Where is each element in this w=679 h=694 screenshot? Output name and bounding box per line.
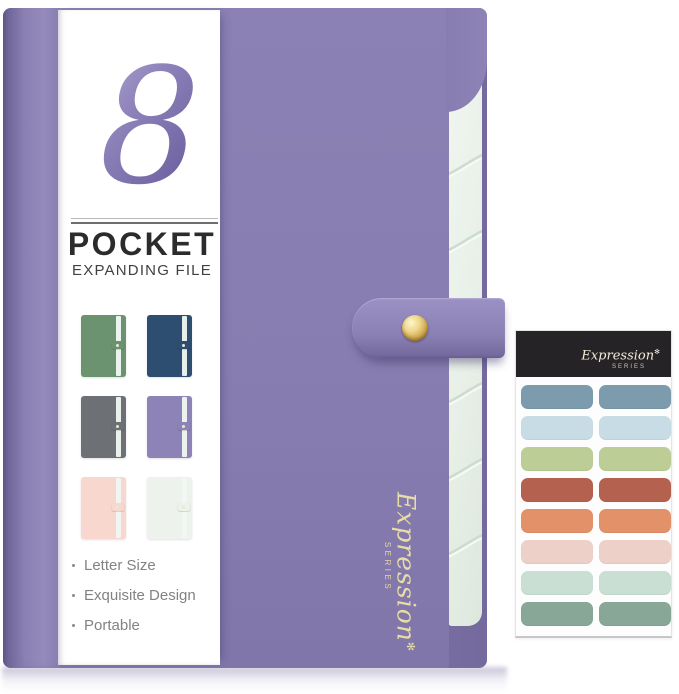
expanding-file-folder: 8 POCKET EXPANDING FILE Letter Size Exqu… (3, 8, 504, 668)
label-sticker (521, 416, 593, 440)
color-swatch-purple (147, 396, 192, 458)
label-sticker (599, 509, 671, 533)
feature-list: Letter Size Exquisite Design Portable (72, 550, 196, 640)
folder-spine-edge (3, 8, 60, 668)
feature-text: Exquisite Design (84, 587, 196, 604)
brand-mark: Expression✻ SERIES (382, 492, 423, 642)
feature-text: Letter Size (84, 557, 156, 574)
star-icon: ✻ (404, 642, 417, 652)
folder-reflection (2, 667, 507, 692)
mini-strap-tab (112, 503, 124, 511)
numeral-8: 8 (99, 50, 201, 210)
mini-strap-tab (112, 341, 124, 349)
mini-strap-tab (112, 422, 124, 430)
feature-text: Portable (84, 617, 140, 634)
color-swatch-navy (147, 315, 192, 377)
sticker-grid (516, 377, 671, 636)
bullet-dot (72, 594, 75, 597)
label-sticker (521, 385, 593, 409)
color-swatch-gray (81, 396, 126, 458)
label-sticker (521, 509, 593, 533)
gold-snap-button-icon (402, 315, 428, 341)
sheet-brand-series: SERIES (612, 363, 646, 371)
brand-name: Expression (392, 492, 421, 642)
sheet-brand-script: Expression✻ (581, 345, 660, 363)
divider-rule (71, 218, 218, 224)
bullet-dot (72, 564, 75, 567)
star-icon: ✻ (654, 348, 660, 356)
closure-strap (352, 298, 505, 358)
label-sticker (599, 447, 671, 471)
label-sticker (521, 571, 593, 595)
sheet-brand-name: Expression (581, 348, 654, 363)
pocket-count-numeral: 8 (86, 50, 214, 210)
product-photo: 8 POCKET EXPANDING FILE Letter Size Exqu… (0, 0, 679, 694)
feature-item: Portable (72, 610, 196, 640)
label-sticker (599, 540, 671, 564)
color-swatch-pink (81, 477, 126, 539)
mini-strap-tab (178, 422, 190, 430)
mini-strap-tab (178, 503, 190, 511)
label-sticker (599, 478, 671, 502)
label-sticker (521, 447, 593, 471)
label-sticker (521, 478, 593, 502)
product-title: POCKET (66, 226, 218, 263)
product-subtitle: EXPANDING FILE (66, 262, 218, 279)
label-sticker (599, 385, 671, 409)
sticker-sheet-header: Expression✻ SERIES (516, 331, 671, 377)
color-swatch-grid (81, 315, 192, 539)
label-sticker (599, 416, 671, 440)
sticker-sheet: Expression✻ SERIES (515, 330, 672, 638)
label-sticker (521, 540, 593, 564)
mini-strap-tab (178, 341, 190, 349)
label-band: 8 POCKET EXPANDING FILE Letter Size Exqu… (58, 10, 220, 665)
color-swatch-green (81, 315, 126, 377)
brand-script-text: Expression✻ (393, 492, 423, 642)
feature-item: Exquisite Design (72, 580, 196, 610)
bullet-dot (72, 624, 75, 627)
label-sticker (521, 602, 593, 626)
label-sticker (599, 571, 671, 595)
feature-item: Letter Size (72, 550, 196, 580)
color-swatch-mint-white (147, 477, 192, 539)
label-sticker (599, 602, 671, 626)
